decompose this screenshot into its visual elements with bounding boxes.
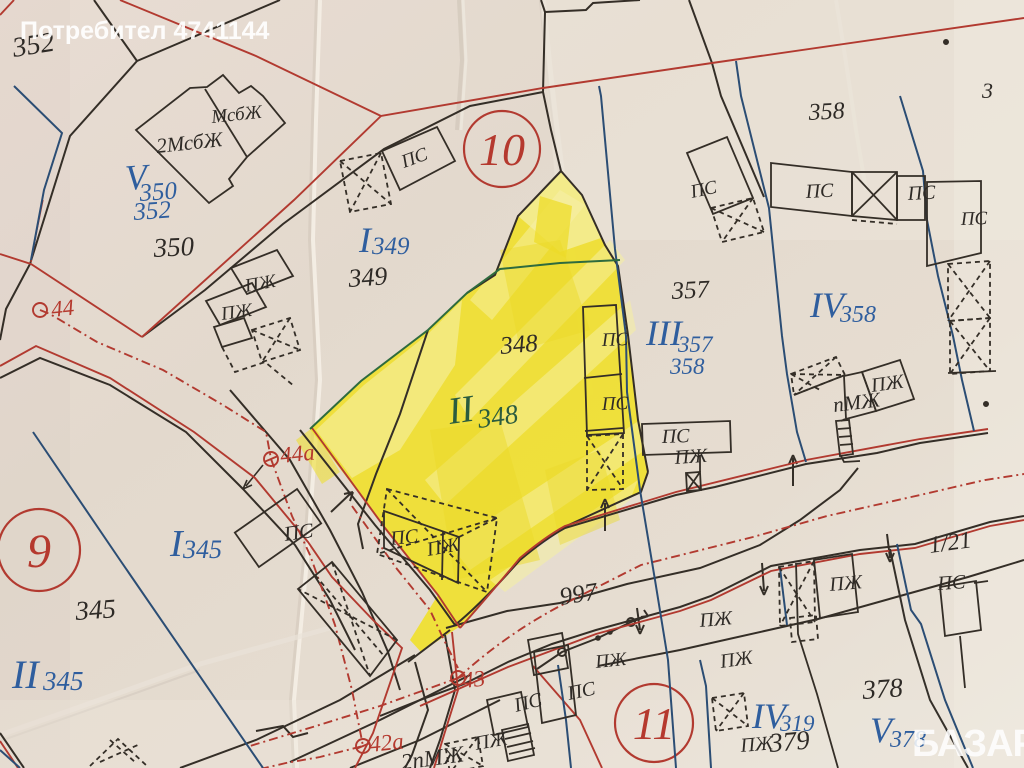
svg-text:БАЗАР: БАЗАР bbox=[912, 723, 1024, 765]
svg-text:357: 357 bbox=[670, 276, 711, 305]
svg-text:11: 11 bbox=[633, 698, 676, 749]
svg-text:42a: 42a bbox=[368, 729, 405, 757]
svg-text:I: I bbox=[358, 220, 373, 260]
svg-text:ПЖ: ПЖ bbox=[593, 649, 629, 673]
svg-text:44: 44 bbox=[50, 295, 75, 322]
svg-text:ПС: ПС bbox=[959, 208, 987, 230]
svg-text:349: 349 bbox=[346, 261, 388, 293]
svg-text:ПЖ: ПЖ bbox=[828, 571, 865, 596]
svg-text:352: 352 bbox=[132, 196, 172, 226]
svg-text:348: 348 bbox=[498, 330, 539, 360]
svg-text:ПС: ПС bbox=[804, 180, 835, 204]
svg-text:ПС: ПС bbox=[936, 571, 967, 595]
svg-text:ПС: ПС bbox=[281, 518, 315, 546]
svg-text:ПС: ПС bbox=[388, 525, 420, 550]
svg-text:345: 345 bbox=[73, 593, 116, 626]
svg-text:378: 378 bbox=[860, 672, 904, 705]
svg-text:10: 10 bbox=[479, 124, 525, 175]
svg-text:358: 358 bbox=[839, 302, 876, 328]
svg-text:350: 350 bbox=[152, 231, 196, 263]
svg-text:II: II bbox=[11, 652, 40, 697]
svg-text:9: 9 bbox=[27, 525, 51, 578]
svg-text:ПС: ПС bbox=[906, 182, 937, 206]
svg-text:319: 319 bbox=[779, 711, 815, 736]
svg-text:345: 345 bbox=[182, 535, 222, 564]
svg-text:ПС: ПС bbox=[600, 393, 628, 415]
svg-text:349: 349 bbox=[371, 233, 410, 260]
svg-text:ПС: ПС bbox=[600, 329, 628, 351]
svg-text:ПЖ: ПЖ bbox=[673, 445, 710, 469]
svg-text:ПЖ: ПЖ bbox=[698, 607, 735, 632]
svg-text:3: 3 bbox=[981, 78, 993, 103]
svg-text:Потребител 4741144: Потребител 4741144 bbox=[20, 17, 270, 45]
svg-text:ПС: ПС bbox=[660, 425, 690, 448]
svg-text:44a: 44a bbox=[279, 440, 316, 468]
svg-text:43: 43 bbox=[461, 666, 486, 693]
svg-text:358: 358 bbox=[807, 98, 845, 126]
svg-text:348: 348 bbox=[475, 399, 521, 435]
svg-text:358: 358 bbox=[669, 354, 705, 379]
svg-text:345: 345 bbox=[42, 666, 84, 696]
